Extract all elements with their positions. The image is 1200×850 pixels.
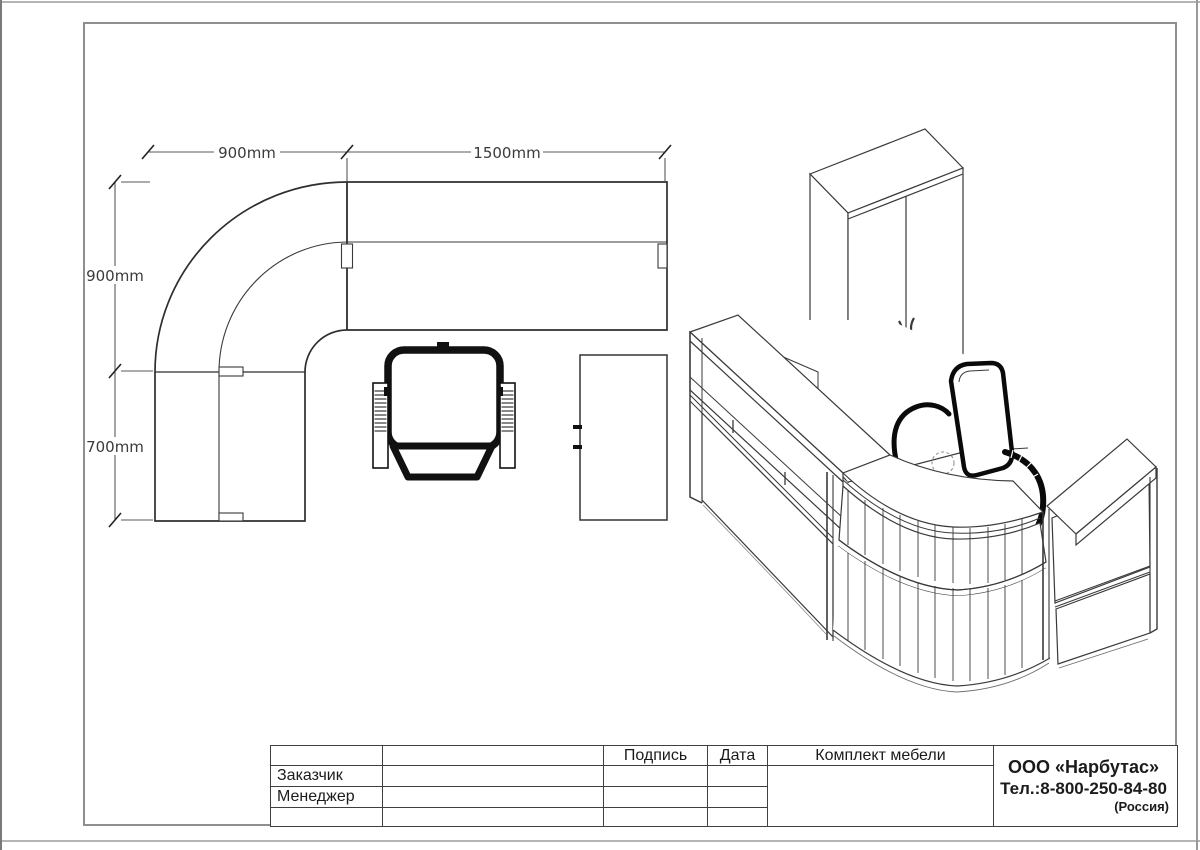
chair-backrest xyxy=(951,363,1012,476)
title-block: Подпись Дата Комплект мебели Заказчик Ме… xyxy=(270,745,1178,827)
title-cell-empty-5 xyxy=(604,808,708,827)
signature-header: Подпись xyxy=(604,746,708,766)
iso-desk-curve xyxy=(833,455,1050,692)
iso-desk-right-run xyxy=(1043,439,1157,668)
dim-label-900-left: 900mm xyxy=(86,267,144,285)
manager-label: Менеджер xyxy=(271,787,383,808)
furniture-set-header: Комплект мебели xyxy=(768,746,994,766)
plan-chair xyxy=(373,342,515,477)
plan-cabinet xyxy=(573,355,667,520)
page: { "page":{ "background":"#ffffff", "line… xyxy=(0,0,1200,850)
title-cell-empty-1 xyxy=(271,746,383,766)
company-country: (Россия) xyxy=(998,799,1169,815)
company-phone: Тел.:8-800-250-84-80 xyxy=(998,778,1169,799)
title-cell-empty-3 xyxy=(271,808,383,827)
title-cell-empty-4 xyxy=(383,808,604,827)
customer-value xyxy=(383,766,604,787)
furniture-drawing: 900mm 1500mm 900mm 700mm xyxy=(0,0,1200,850)
iso-view xyxy=(690,129,1157,692)
manager-date xyxy=(708,787,768,808)
customer-label: Заказчик xyxy=(271,766,383,787)
dim-label-1500: 1500mm xyxy=(473,144,540,162)
title-cell-empty-2 xyxy=(383,746,604,766)
title-cell-empty-6 xyxy=(708,808,768,827)
manager-signature xyxy=(604,787,708,808)
company-info: ООО «Нарбутас» Тел.:8-800-250-84-80 (Рос… xyxy=(994,746,1178,827)
date-header: Дата xyxy=(708,746,768,766)
dim-label-700: 700mm xyxy=(86,438,144,456)
dim-label-900-top: 900mm xyxy=(218,144,276,162)
customer-signature xyxy=(604,766,708,787)
company-name: ООО «Нарбутас» xyxy=(998,757,1169,778)
furniture-set-body xyxy=(768,766,994,827)
manager-value xyxy=(383,787,604,808)
plan-view: 900mm 1500mm 900mm 700mm xyxy=(86,143,671,527)
customer-date xyxy=(708,766,768,787)
